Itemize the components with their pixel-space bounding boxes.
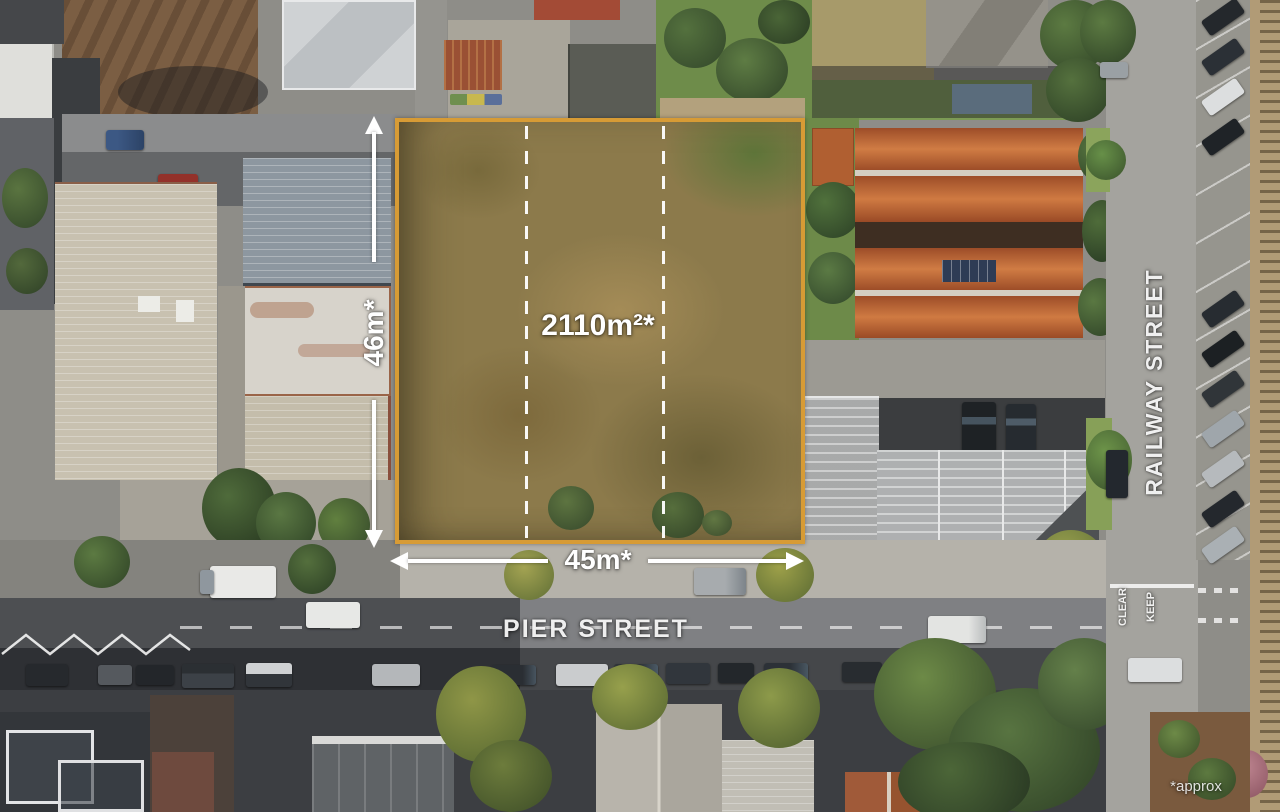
- keep-clear-marking: CLEAR: [1112, 578, 1134, 636]
- arrowhead-left: [390, 552, 408, 570]
- skylight: [176, 300, 194, 322]
- zigzag-road-marking: [0, 630, 192, 660]
- parked-car-dark: [962, 402, 996, 452]
- parked-van: [246, 663, 292, 687]
- roof-seam: [938, 450, 940, 548]
- warehouse-roof: [55, 182, 217, 480]
- ribbed-building: [722, 740, 814, 812]
- driveway-east: [803, 340, 1105, 402]
- tree: [664, 8, 726, 68]
- shrub: [1158, 720, 1200, 758]
- parked-car-white: [1128, 658, 1182, 682]
- dark-roof: [0, 0, 64, 44]
- keep-clear-marking: KEEP: [1140, 578, 1162, 636]
- railway-track: [1260, 0, 1280, 812]
- parked-car: [136, 665, 174, 685]
- parked-car-gray: [694, 568, 746, 595]
- red-roof-house: [534, 0, 620, 20]
- tree: [716, 38, 788, 102]
- parked-car: [98, 665, 132, 685]
- railway-street-label: RAILWAY STREET: [1138, 272, 1170, 492]
- parked-car: [666, 663, 710, 684]
- truck-cab: [200, 570, 214, 594]
- aerial-photo: CLEAR KEEP 2110m²* 46m* 45m* PIER STREET…: [0, 0, 1280, 812]
- street-tree-autumn: [504, 550, 554, 600]
- kerb-car: [1106, 450, 1128, 498]
- depth-label: 46m*: [357, 288, 391, 378]
- box-truck: [210, 566, 276, 598]
- garden-shed: [812, 128, 854, 186]
- depth-dimension-line: [372, 400, 376, 532]
- townhouse-roof: [855, 296, 1083, 338]
- tree: [1080, 0, 1136, 64]
- hip-roof-house-ne: [926, 0, 1048, 68]
- tree: [470, 740, 552, 812]
- frontage-dimension-line: [648, 559, 786, 563]
- white-building: [0, 44, 54, 118]
- rust-shed: [444, 40, 502, 90]
- carport: [952, 84, 1032, 114]
- gravel-path: [660, 98, 805, 120]
- pier-street-label: PIER STREET: [446, 612, 746, 646]
- depth-dimension-line: [372, 132, 376, 262]
- colored-bins: [450, 94, 502, 105]
- tree: [2, 168, 48, 228]
- warehouse-roof-low: [232, 396, 391, 482]
- crosswalk-dashes: [1198, 588, 1244, 593]
- driveway: [415, 0, 447, 120]
- townhouse-gap-shadow: [855, 222, 1083, 248]
- rust-stain: [250, 302, 314, 318]
- area-label: 2110m²*: [478, 306, 718, 346]
- roof-seam: [1002, 450, 1004, 548]
- solar-panels: [942, 260, 996, 282]
- skylight: [138, 296, 160, 312]
- arrowhead-right: [786, 552, 804, 570]
- street-tree-autumn: [756, 548, 814, 602]
- tree: [808, 252, 858, 304]
- tree: [1086, 140, 1126, 180]
- moving-van-white: [306, 602, 360, 628]
- apartment-frame: [58, 760, 144, 812]
- commercial-roof-tower: [803, 396, 879, 548]
- parked-van: [182, 664, 234, 688]
- townhouse-roof: [855, 128, 1083, 170]
- street-tree: [74, 536, 130, 588]
- tree-autumn: [738, 668, 820, 748]
- crosswalk-dashes: [1198, 618, 1244, 623]
- townhouse-roof: [855, 176, 1083, 222]
- dirt-shadow: [118, 66, 268, 118]
- tree: [898, 742, 1030, 812]
- kerb-car: [1100, 62, 1128, 78]
- parked-car-dark: [1006, 404, 1036, 452]
- warehouse-roof-gray: [243, 158, 391, 286]
- hip-roof-house: [282, 0, 416, 90]
- parked-car-silver: [372, 664, 420, 686]
- tree: [6, 248, 48, 294]
- parked-car: [26, 664, 68, 686]
- tree: [806, 182, 860, 238]
- tree-autumn: [592, 664, 668, 730]
- frontage-label: 45m*: [548, 544, 648, 576]
- frontage-dimension-line: [408, 559, 548, 563]
- gray-building: [312, 736, 454, 812]
- street-tree: [288, 544, 336, 594]
- dark-shed: [568, 44, 660, 122]
- arrowhead-down: [365, 530, 383, 548]
- approx-footnote: *approx: [1146, 775, 1246, 797]
- concrete-strip: [218, 286, 245, 482]
- red-brick-roof: [152, 752, 214, 812]
- shadow-band-ne: [812, 66, 1086, 118]
- tree: [758, 0, 810, 44]
- parked-car-blue: [106, 130, 144, 150]
